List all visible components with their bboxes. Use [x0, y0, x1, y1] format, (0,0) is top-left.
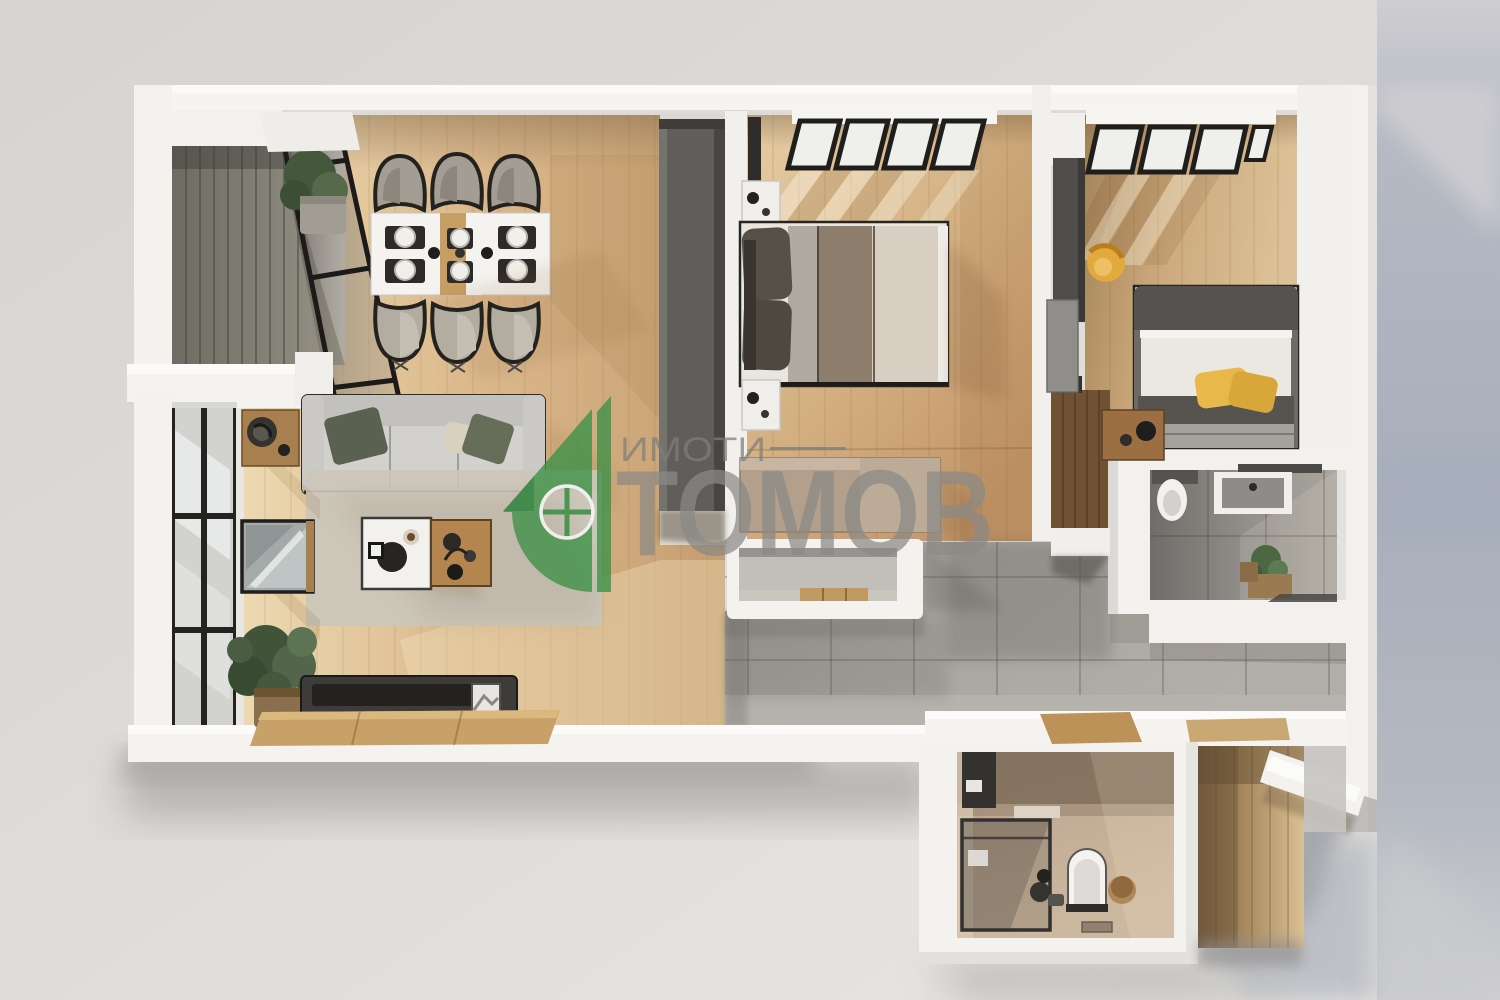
svg-text:ТОМОВ: ТОМОВ: [616, 445, 994, 581]
